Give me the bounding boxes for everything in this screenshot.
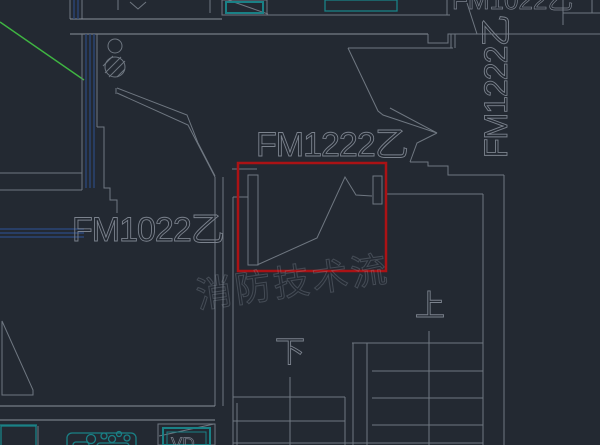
drawing-canvas[interactable]: 消防技术流 FM1222乙 FM1022乙 FM1222乙 FM1022乙 上 …	[0, 0, 600, 445]
teal-box-top-left	[226, 2, 263, 13]
door-label-top-partial: FM1022乙	[452, 0, 573, 15]
counter-fixture	[1, 426, 36, 445]
staircase	[233, 331, 483, 445]
stair-up-label: 上	[415, 290, 445, 323]
diamond-symbol	[130, 2, 146, 9]
door-label-right-vertical: FM1222乙	[478, 16, 514, 158]
column-circle-symbol	[108, 39, 122, 53]
stair-down-label: 下	[275, 336, 305, 369]
vd-label: VD	[171, 434, 195, 445]
door-label-left: FM1022乙	[72, 211, 224, 249]
door-leaf-bottom-left	[2, 321, 33, 395]
reference-line-green	[0, 22, 84, 80]
floor-plan-drawing: 消防技术流 FM1222乙 FM1022乙 FM1222乙 FM1022乙 上 …	[0, 0, 600, 445]
door-label-center: FM1222乙	[256, 126, 408, 164]
hatched-column-symbol	[103, 56, 125, 77]
navy-wall-lines	[0, 0, 94, 237]
door-leaf-left	[116, 88, 215, 177]
stove-sink-fixture	[67, 432, 136, 445]
teal-box-top-center	[325, 0, 397, 11]
